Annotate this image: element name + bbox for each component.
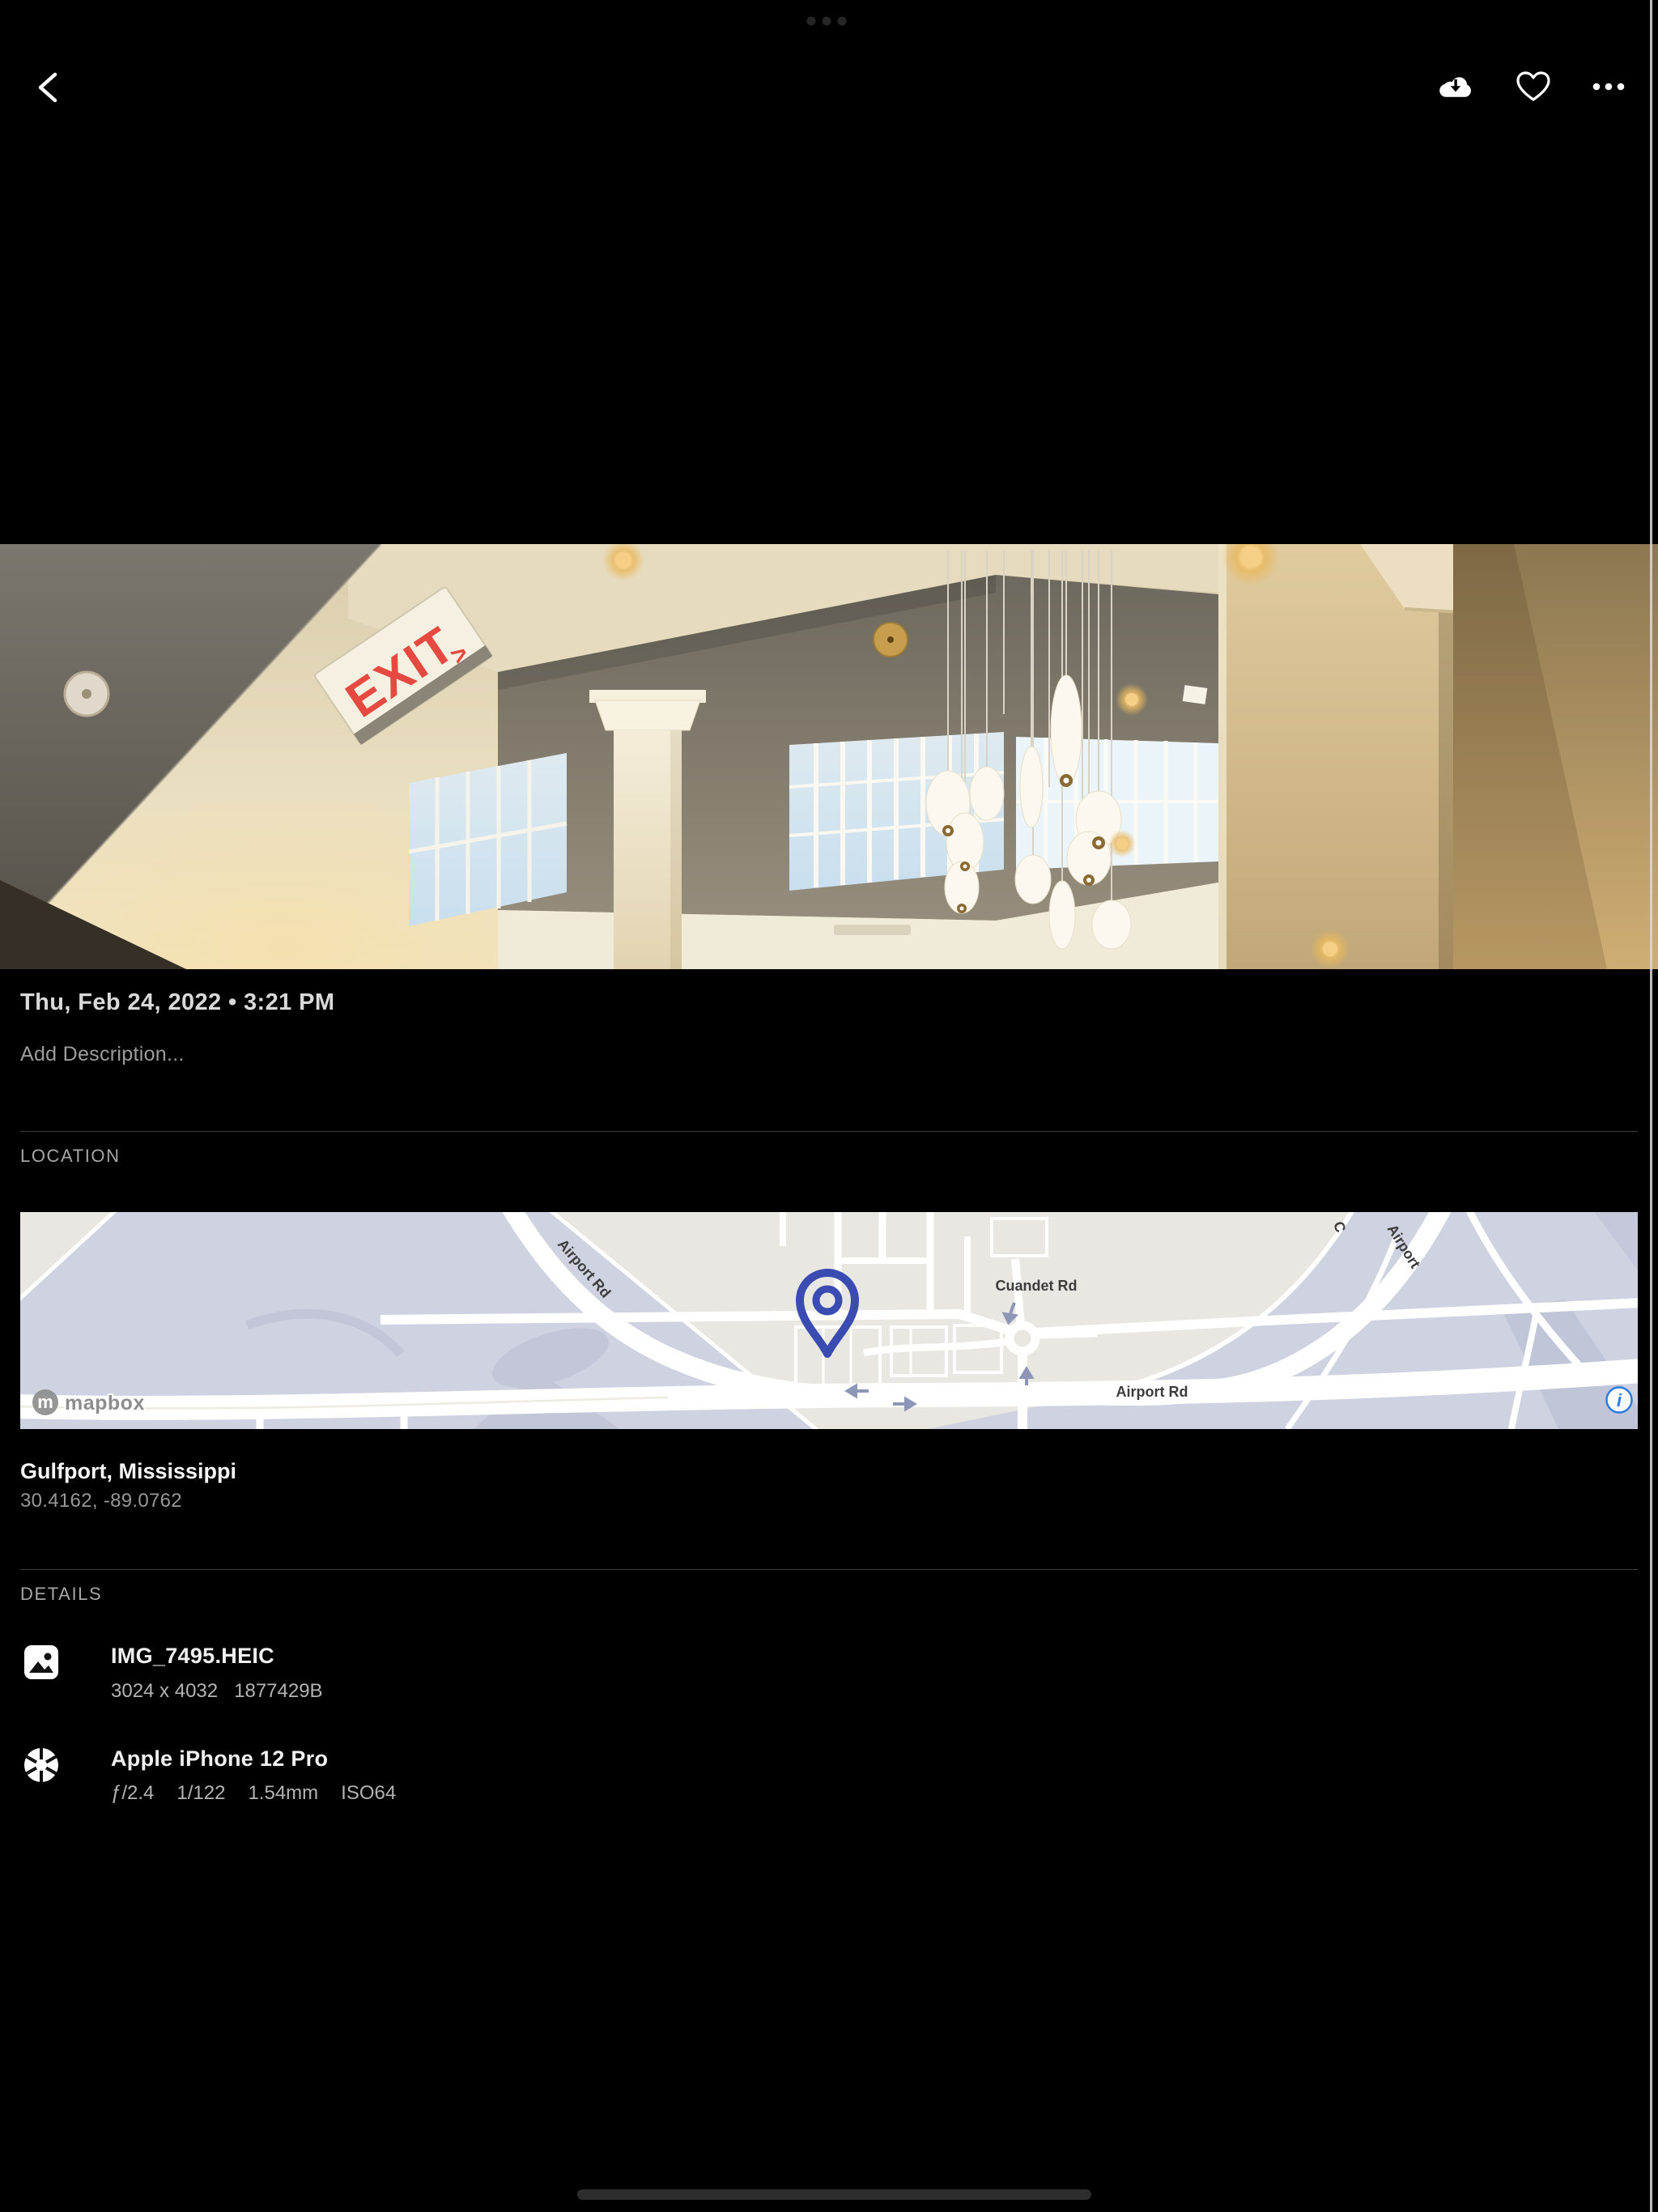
road-label-cuandet: Cuandet Rd [996, 1278, 1078, 1294]
exif-focal-length: 1.54mm [248, 1782, 318, 1805]
map-info-button[interactable]: i [1607, 1388, 1632, 1413]
file-name: IMG_7495.HEIC [111, 1644, 274, 1669]
exif-shutter: 1/122 [176, 1782, 225, 1805]
camera-exif: ƒ/2.4 1/122 1.54mm ISO64 [111, 1782, 419, 1805]
file-dimensions: 3024 x 4032 [111, 1680, 218, 1703]
gps-coordinates: 30.4162, -89.0762 [20, 1490, 182, 1512]
mapbox-attribution[interactable]: m mapbox [32, 1389, 145, 1415]
multitask-indicator-icon[interactable] [806, 16, 852, 26]
cloud-download-icon [1437, 73, 1474, 102]
road-label-airport-horizontal: Airport Rd [1116, 1384, 1188, 1400]
scrollbar [1650, 0, 1652, 2212]
home-indicator[interactable] [577, 2189, 1091, 2200]
mapbox-logo-mark: m [37, 1392, 53, 1412]
info-icon-glyph: i [1617, 1390, 1622, 1410]
divider [20, 1569, 1638, 1570]
favorite-button[interactable] [1516, 70, 1551, 103]
ellipsis-icon [1592, 82, 1627, 91]
image-icon [23, 1644, 60, 1681]
details-section-label: DETAILS [20, 1584, 102, 1605]
more-options-button[interactable] [1592, 82, 1627, 91]
photo-detail-screen: EXIT > Thu, Feb 24, 2022 • 3:21 PM Add D… [0, 0, 1658, 2212]
exif-aperture: ƒ/2.4 [111, 1782, 154, 1805]
download-button[interactable] [1437, 73, 1474, 102]
exif-iso: ISO64 [341, 1782, 396, 1805]
divider [20, 1131, 1638, 1132]
description-input[interactable]: Add Description... [20, 1043, 185, 1066]
back-button[interactable] [32, 70, 68, 105]
camera-model: Apple iPhone 12 Pro [111, 1746, 328, 1772]
file-info: 3024 x 4032 1877429B [111, 1680, 339, 1703]
heart-icon [1516, 70, 1551, 103]
location-map[interactable]: Airport Rd Cuandet Rd Airport Rd Airport… [20, 1212, 1638, 1429]
place-name: Gulfport, Mississippi [20, 1459, 236, 1484]
chevron-left-icon [32, 70, 68, 105]
file-size: 1877429B [234, 1680, 322, 1703]
location-section-label: LOCATION [20, 1146, 121, 1167]
photo-datetime: Thu, Feb 24, 2022 • 3:21 PM [20, 989, 334, 1016]
mapbox-logo-text: mapbox [65, 1392, 145, 1414]
photo-preview[interactable]: EXIT > [0, 544, 1658, 969]
camera-icon [23, 1746, 60, 1784]
